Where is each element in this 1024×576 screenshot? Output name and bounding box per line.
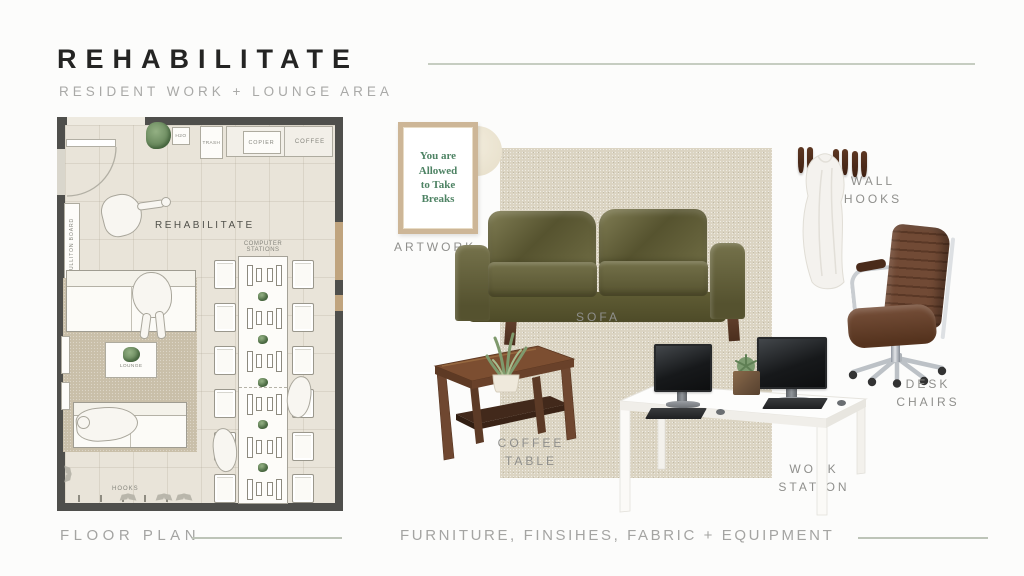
door-opening <box>67 117 145 125</box>
page-title: REHABILITATE <box>57 44 359 75</box>
potted-plant <box>483 330 529 394</box>
counter-divider <box>284 127 285 156</box>
plan-sofa-top <box>66 270 196 332</box>
sofa-back-cushion <box>488 211 596 268</box>
page-subtitle: RESIDENT WORK + LOUNGE AREA <box>59 84 393 99</box>
keyboard <box>645 408 707 419</box>
monitor-icon <box>247 265 262 286</box>
monitor-icon <box>247 351 262 372</box>
chair-icon <box>292 303 314 332</box>
monitor-icon <box>267 308 282 329</box>
hook-tick-icon <box>78 495 80 502</box>
chair-icon <box>214 303 236 332</box>
computer-station-row <box>214 344 314 378</box>
design-board-slide: REHABILITATE RESIDENT WORK + LOUNGE AREA… <box>0 0 1024 576</box>
hook-tick-icon <box>144 495 146 502</box>
desk-chairs-label: DESK CHAIRS <box>893 375 963 411</box>
mouse <box>716 409 725 415</box>
right-wall-accent <box>335 222 343 280</box>
monitor <box>654 344 712 392</box>
coffee-table-label: COFFEE TABLE <box>496 434 566 470</box>
chair-icon <box>292 260 314 289</box>
chair-seat <box>847 303 938 349</box>
sofa-seat-cushion <box>488 262 597 297</box>
copier-box: COPIER <box>243 131 281 154</box>
computer-station-row <box>214 301 314 335</box>
hanging-item-icon <box>121 492 135 502</box>
monitor-icon <box>247 479 262 500</box>
hanging-item-icon <box>177 492 191 502</box>
monitor-icon <box>267 265 282 286</box>
sofa-seat-cushion <box>599 261 708 296</box>
board-section-label: FURNITURE, FINSIHES, FABRIC + EQUIPMENT <box>400 527 834 544</box>
hook-tick-icon <box>100 495 102 502</box>
chair-icon <box>292 474 314 503</box>
monitor-icon <box>247 394 262 415</box>
hanging-item-icon <box>63 467 73 481</box>
room-name-label: REHABILITATE <box>155 220 255 231</box>
chair-icon <box>292 432 314 461</box>
monitor <box>757 337 827 389</box>
left-wall-window <box>57 149 65 195</box>
hanging-item-icon <box>157 492 171 502</box>
chair-icon <box>214 474 236 503</box>
artwork-frame: You are Allowed to Take Breaks <box>398 122 478 234</box>
trash-box: TRASH <box>200 126 223 159</box>
sofa-back-cushion <box>599 209 707 266</box>
sitting-person-figure <box>132 272 172 318</box>
chair-icon <box>214 260 236 289</box>
board-divider-line <box>858 537 988 539</box>
floor-plan-divider-line <box>192 537 342 539</box>
computer-station-row <box>214 258 314 292</box>
counter: COPIER COFFEE <box>226 126 333 157</box>
chair-gas-lift <box>891 344 900 362</box>
sofa-label: SOFA <box>562 308 634 326</box>
coffee-counter-label: COFFEE <box>287 139 333 145</box>
water-station-box: H2O <box>172 127 190 145</box>
computer-stations-label: COMPUTER STATIONS <box>236 241 290 253</box>
mouse <box>837 400 846 406</box>
wall-shelf <box>61 336 70 374</box>
person-head-figure <box>77 416 90 429</box>
sofa-back-cushion <box>67 271 195 287</box>
monitor-icon <box>267 437 282 458</box>
monitor-icon <box>267 479 282 500</box>
monitor-icon <box>247 437 262 458</box>
wall-shelf <box>61 382 70 410</box>
sofa-arm <box>710 243 745 319</box>
computer-station-row <box>214 472 314 506</box>
wooden-pot <box>733 371 760 395</box>
floor-plan-section-label: FLOOR PLAN <box>60 527 200 544</box>
plant-icon <box>123 347 140 362</box>
keyboard <box>762 398 828 409</box>
sofa-arm <box>455 245 490 321</box>
monitor-base <box>666 401 700 408</box>
monitor-icon <box>247 308 262 329</box>
chair-icon <box>214 346 236 375</box>
lounge-table: LOUNGE <box>105 342 157 378</box>
hanging-garment <box>792 150 867 295</box>
right-wall-accent-small <box>335 295 343 311</box>
monitor-icon <box>267 351 282 372</box>
floor-plan: H2O TRASH COPIER COFFEE BULLITON BOARD R… <box>57 117 343 511</box>
person-hand-figure <box>161 197 171 207</box>
chair-icon <box>214 389 236 418</box>
header-divider-line <box>428 63 975 65</box>
chair-icon <box>292 346 314 375</box>
monitor-icon <box>267 394 282 415</box>
